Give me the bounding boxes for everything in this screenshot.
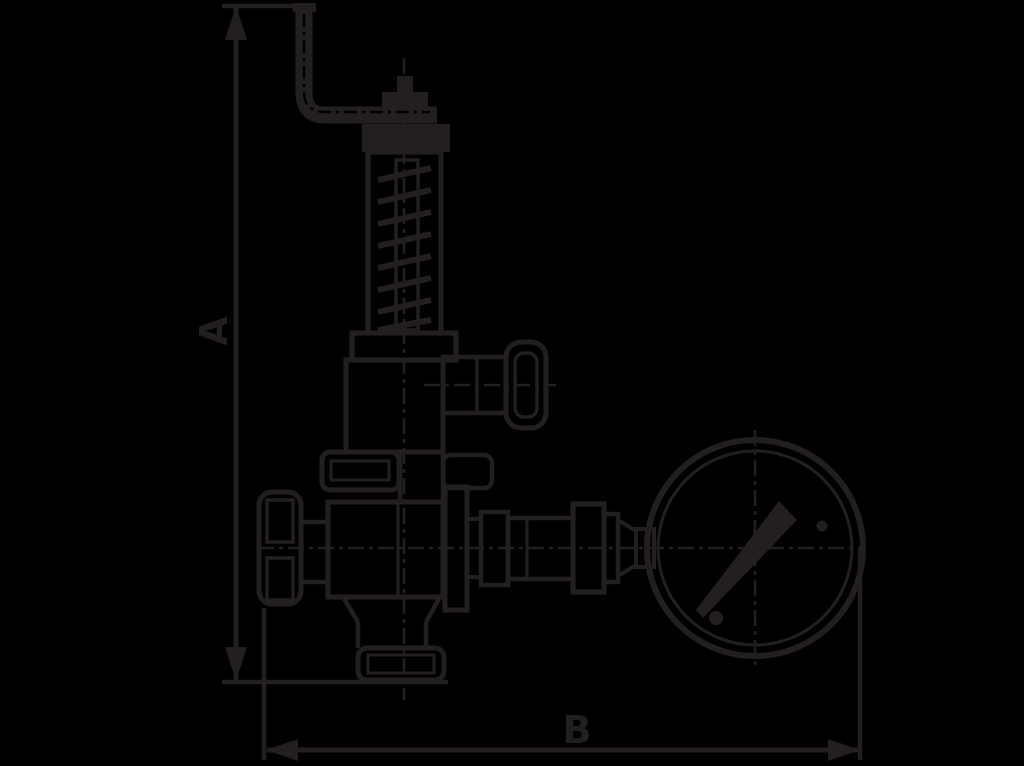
union-column bbox=[400, 452, 443, 502]
gauge-screw-lower bbox=[709, 611, 723, 625]
union-flange bbox=[322, 452, 399, 490]
union-right-block bbox=[443, 455, 492, 488]
arrow-up-icon bbox=[225, 6, 247, 40]
gauge-screw-upper bbox=[817, 521, 828, 532]
spring-cap bbox=[362, 124, 450, 152]
arrow-left-icon bbox=[266, 739, 298, 761]
body-bottom-taper bbox=[343, 597, 440, 622]
handwheel-upper-opening bbox=[267, 500, 293, 542]
stem-tip bbox=[397, 76, 413, 94]
bottom-flange-inner bbox=[368, 655, 434, 673]
valve-technical-drawing: A B bbox=[0, 0, 1024, 766]
locknut bbox=[382, 92, 428, 110]
dimension-a-label: A bbox=[192, 316, 236, 346]
arrow-down-icon bbox=[225, 647, 247, 681]
valve-body bbox=[301, 487, 467, 648]
handwheel-lower-opening bbox=[267, 558, 293, 600]
union-flange-inner bbox=[331, 461, 389, 480]
bottom-outlet-flange bbox=[358, 648, 444, 680]
body-shell bbox=[328, 502, 443, 597]
handwheel-stem bbox=[301, 522, 328, 582]
bonnet-shell bbox=[346, 360, 443, 452]
drawing-canvas: A B bbox=[0, 0, 1024, 766]
gauge-needle bbox=[696, 501, 797, 618]
bottom-neck bbox=[358, 622, 426, 648]
dimension-b-label: B bbox=[563, 708, 592, 752]
arrow-right-icon bbox=[828, 739, 860, 761]
bonnet bbox=[346, 333, 456, 452]
bottom-flange bbox=[358, 648, 444, 680]
